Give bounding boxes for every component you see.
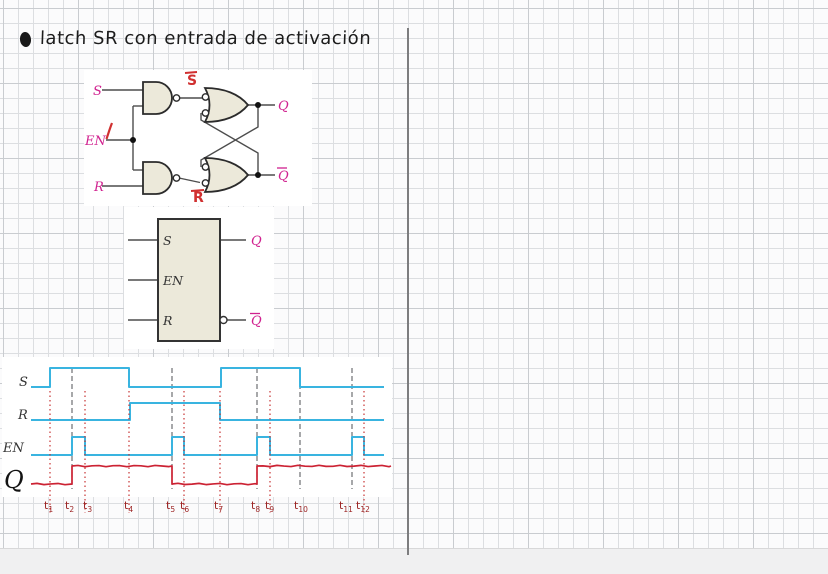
block-qbar-label: Q <box>251 314 262 329</box>
block-en-label: EN <box>162 273 184 288</box>
circuit-wires <box>102 90 275 186</box>
qbar-bubble <box>220 317 227 324</box>
timing-background <box>2 357 392 497</box>
en-value-one-mark <box>107 123 113 139</box>
sbar-overbar <box>185 72 197 73</box>
time-label-t7: t7 <box>214 499 223 514</box>
timing-diagram-image[interactable]: SRENQt1t2t3t4t5t6t7t8t9t10t11t12 <box>0 357 400 522</box>
s-input-label: S <box>93 84 102 99</box>
time-label-t8: t8 <box>251 499 260 514</box>
signal-label-S: S <box>19 375 28 390</box>
signal-label-Q: Q <box>4 466 24 494</box>
time-label-t6: t6 <box>180 499 189 514</box>
qbar-output-label: Q <box>278 169 289 184</box>
nand-gate-bottom <box>143 162 172 194</box>
bullet-icon <box>19 31 32 47</box>
en-input-label: EN <box>84 134 106 149</box>
sbar-annotation: S <box>187 73 197 89</box>
time-label-t5: t5 <box>166 499 175 514</box>
nor-gate-top <box>205 88 248 122</box>
page-bottom-margin <box>0 548 828 574</box>
inverter-bubbles <box>173 94 208 186</box>
gate-circuit-svg: S EN R Q Q S R <box>84 70 312 206</box>
q-output-label: Q <box>278 99 289 114</box>
time-label-t2: t2 <box>65 499 74 514</box>
time-label-t11: t11 <box>339 499 353 514</box>
r-input-label: R <box>93 180 104 195</box>
page-title-text: latch SR con entrada de activación <box>40 28 372 49</box>
block-q-label: Q <box>251 234 262 249</box>
signal-label-R: R <box>17 408 28 423</box>
rbar-overbar <box>191 190 204 191</box>
page-divider-line <box>407 28 409 555</box>
nand-gate-top <box>143 82 172 114</box>
time-label-t10: t10 <box>294 499 308 514</box>
time-label-t4: t4 <box>124 499 133 514</box>
time-label-t12: t12 <box>356 499 370 514</box>
gate-circuit-image[interactable]: S EN R Q Q S R <box>84 70 312 206</box>
notebook-page: latch SR con entrada de activación <box>0 0 828 574</box>
time-label-t9: t9 <box>265 499 274 514</box>
block-s-label: S <box>163 233 172 248</box>
page-title: latch SR con entrada de activación <box>20 28 371 49</box>
nor-gate-bottom <box>205 158 248 192</box>
time-label-t3: t3 <box>83 499 92 514</box>
signal-label-EN: EN <box>2 441 24 456</box>
rbar-annotation: R <box>193 190 204 206</box>
time-label-t1: t1 <box>44 499 53 514</box>
block-symbol-svg: S EN R Q Q <box>124 207 274 349</box>
block-r-label: R <box>162 313 172 328</box>
block-symbol-image[interactable]: S EN R Q Q <box>124 207 274 349</box>
